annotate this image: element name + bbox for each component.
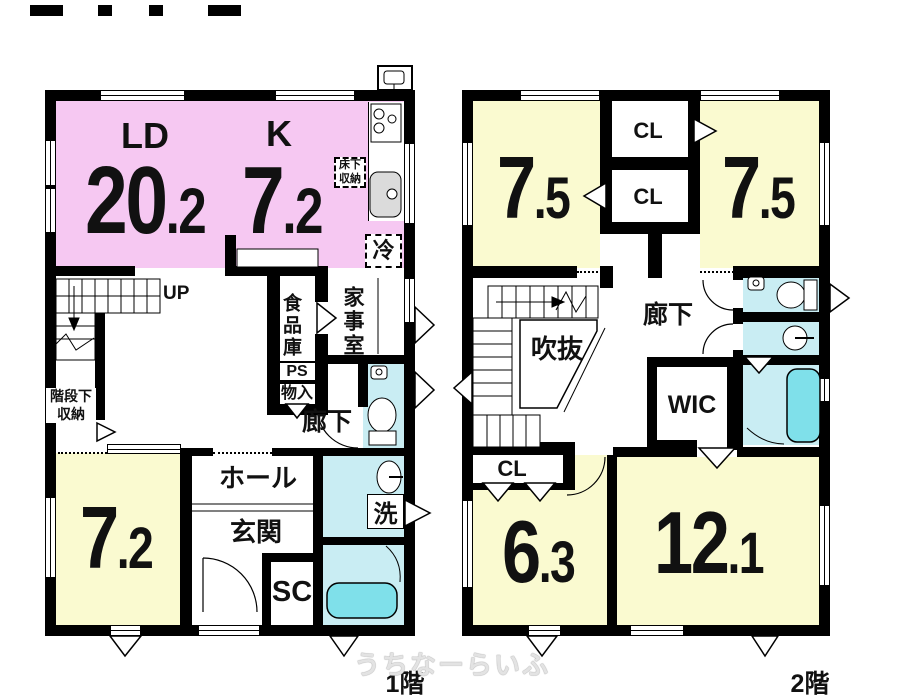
range-hood-icon	[378, 66, 412, 90]
stove-icon	[371, 104, 401, 142]
washbasin-icon	[377, 461, 403, 493]
closet3-label: CL	[497, 458, 526, 480]
up-label: UP	[163, 284, 189, 303]
bath-door-arc	[386, 546, 400, 582]
west-room-size: 7.2	[80, 498, 152, 579]
floor-plan-canvas: LD 20.2 K 7.2 床下収納 冷 UP 食品庫 家事室 PS 物入 廊下…	[0, 0, 900, 700]
shoe-closet-label: SC	[272, 578, 312, 607]
hall-label: ホール	[219, 465, 297, 491]
site-watermark: うちなーらいふ	[354, 652, 550, 678]
sink-icon	[370, 172, 401, 217]
closet2-label: CL	[633, 186, 662, 208]
bath-door-arc-2f	[747, 428, 784, 444]
floor2-label: 2階	[791, 672, 830, 697]
ld-size: 20.2	[85, 157, 205, 245]
storage-label: 物入	[281, 386, 313, 402]
entrance-label: 玄関	[230, 519, 282, 545]
sw-room-size: 6.3	[502, 512, 574, 593]
bathtub-icon	[327, 583, 397, 618]
toilet-icon-2f	[748, 277, 817, 310]
k-size: 7.2	[242, 157, 322, 245]
underfloor-storage: 床下収納	[334, 157, 366, 188]
ne-room-size: 7.5	[722, 148, 794, 229]
toilet-icon	[368, 366, 396, 445]
se-room-size: 12.1	[654, 503, 763, 584]
laundry-space: 洗	[367, 494, 404, 529]
pantry-label: 食品庫	[281, 293, 300, 359]
bathtub-icon-2f	[787, 369, 820, 442]
corridor-label-2f: 廊下	[643, 303, 693, 328]
detail-overlay	[0, 0, 900, 700]
closet1-label: CL	[633, 120, 662, 142]
ps-label: PS	[286, 364, 307, 380]
corridor-label-1f: 廊下	[302, 410, 352, 435]
void-label: 吹抜	[531, 336, 583, 362]
wic-label: WIC	[668, 393, 717, 418]
utility-room-label: 家事室	[342, 286, 363, 358]
nw-room-size: 7.5	[497, 148, 569, 229]
washbasin-icon-2f	[783, 326, 814, 350]
stairs-1f	[56, 279, 160, 360]
refrigerator-space: 冷	[365, 234, 402, 268]
understairs-storage-label: 階段下収納	[46, 388, 96, 423]
